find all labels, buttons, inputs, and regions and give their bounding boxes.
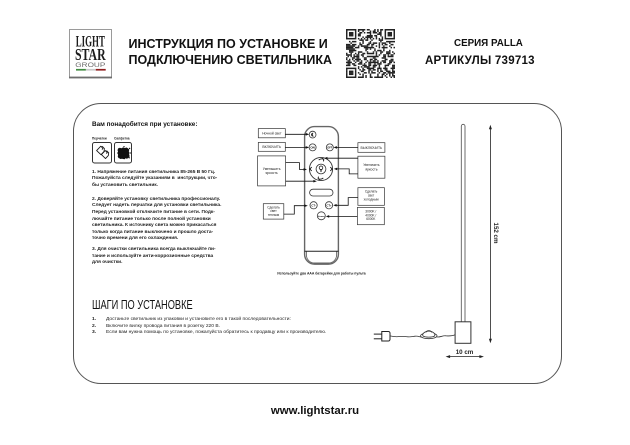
svg-text:10 cm: 10 cm [456, 349, 474, 356]
svg-text:152 cm: 152 cm [492, 223, 499, 244]
